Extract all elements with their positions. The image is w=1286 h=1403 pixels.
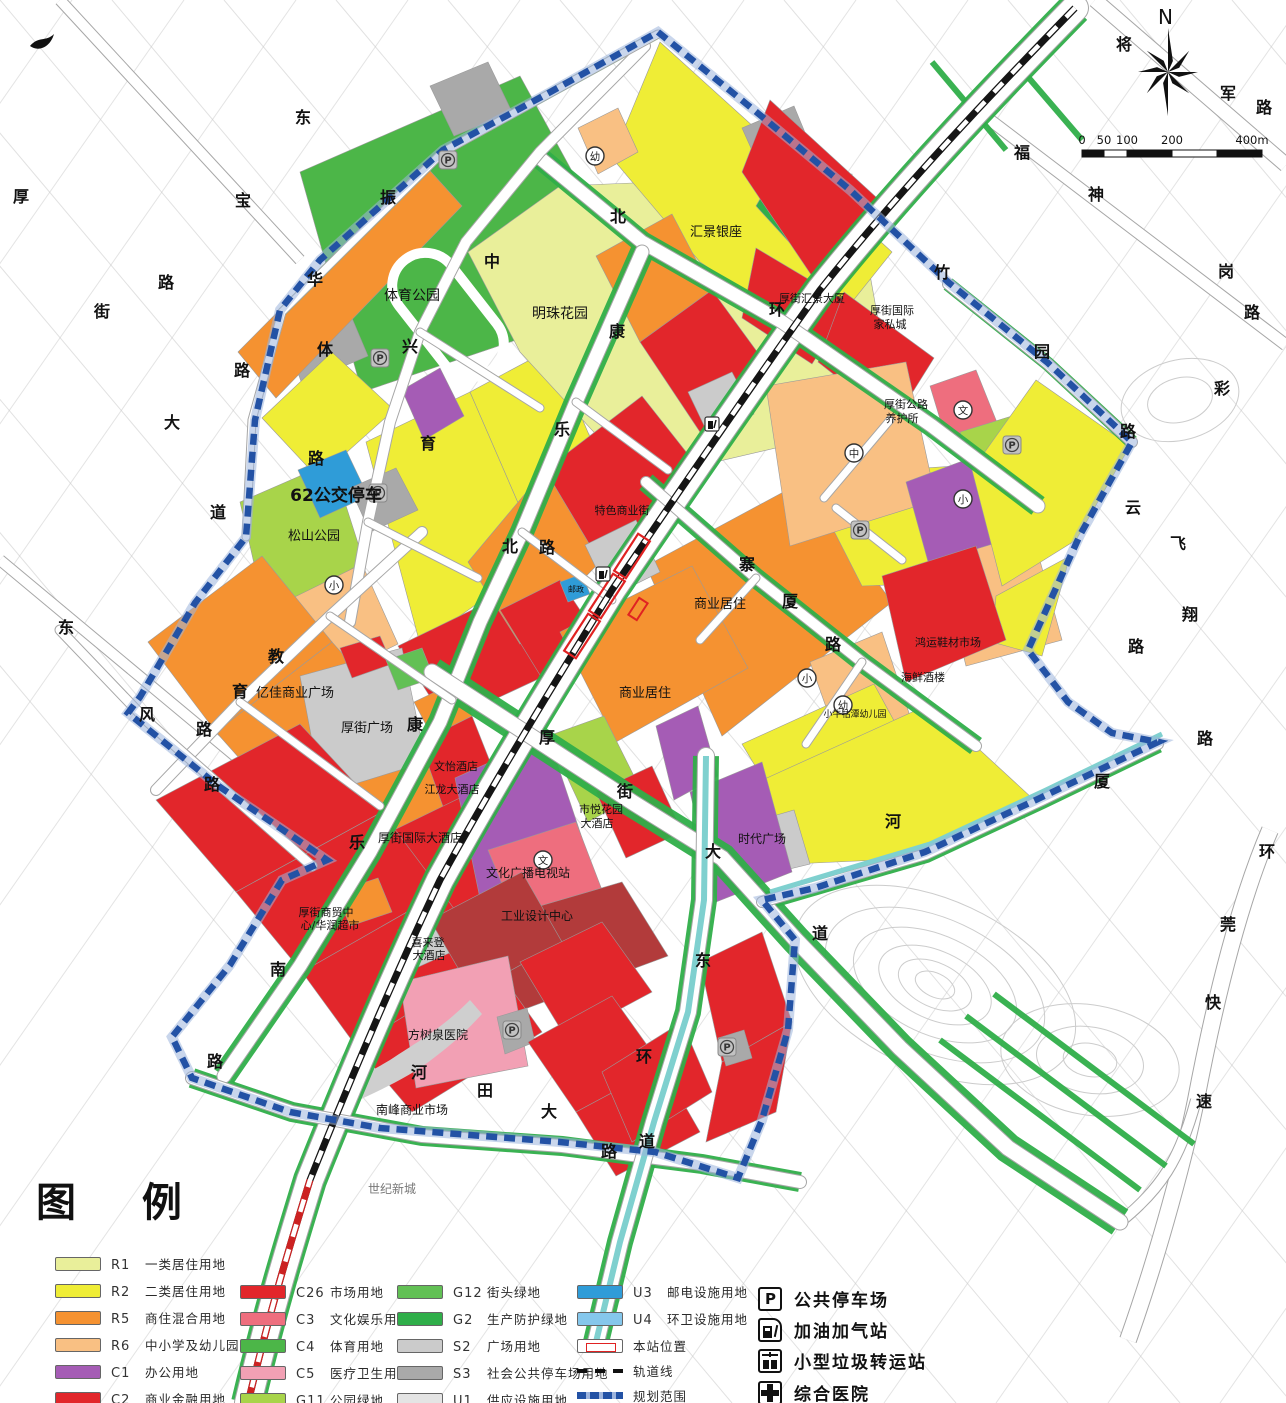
place-label: 厚街汇景大厦 bbox=[779, 291, 845, 305]
scale-tick-label: 50 bbox=[1097, 133, 1112, 147]
road-name-char: 宝 bbox=[235, 191, 251, 210]
gas-station-icon bbox=[705, 417, 719, 431]
school-culture-icon: 小 bbox=[954, 490, 972, 508]
road-name-char: 神 bbox=[1088, 185, 1104, 204]
road-name-char: 快 bbox=[1205, 993, 1222, 1012]
road-name-char: 街 bbox=[93, 302, 110, 321]
parking-icon: P bbox=[503, 1021, 521, 1039]
place-label: 62公交停车 bbox=[290, 485, 382, 506]
road-name-char: 彩 bbox=[1213, 379, 1230, 398]
road-name-char: 飞 bbox=[1170, 534, 1186, 553]
road-name-char: 路 bbox=[1120, 422, 1137, 441]
road-name-char: 河 bbox=[885, 812, 901, 831]
place-label: 鸿运鞋材市场 bbox=[915, 635, 981, 649]
road-name-char: 道 bbox=[210, 503, 226, 522]
school-culture-icon: 中 bbox=[845, 444, 863, 462]
parking-icon: P bbox=[371, 349, 389, 367]
road-name-char: 乐 bbox=[554, 420, 570, 439]
road-name-char: 翔 bbox=[1181, 605, 1198, 624]
place-label: 体育公园 bbox=[384, 288, 440, 304]
svg-text:中: 中 bbox=[849, 447, 860, 460]
place-label: 商业居住 bbox=[694, 597, 746, 612]
road-name-char: 路 bbox=[1244, 303, 1261, 322]
road-name-char: 北 bbox=[610, 207, 626, 226]
road-name-char: 环 bbox=[636, 1047, 652, 1066]
road-name-char: 军 bbox=[1220, 84, 1236, 103]
scale-bar: 050100200400m bbox=[1078, 133, 1268, 157]
place-label: 厚街国际 bbox=[870, 303, 914, 317]
svg-text:P: P bbox=[1008, 441, 1015, 452]
road-name-char: 东 bbox=[58, 618, 74, 637]
road-name-char: 育 bbox=[420, 434, 436, 453]
road-name-char: 园 bbox=[1034, 342, 1050, 361]
road-name-char: 路 bbox=[1128, 637, 1145, 656]
road-name-char: 厚 bbox=[13, 187, 29, 206]
svg-text:小: 小 bbox=[958, 494, 969, 506]
svg-text:幼: 幼 bbox=[590, 150, 601, 163]
place-label: 喜来登 bbox=[412, 935, 445, 949]
svg-text:文: 文 bbox=[538, 854, 549, 867]
landuse-parcels bbox=[148, 42, 1130, 1176]
road-name-char: 福 bbox=[1013, 143, 1030, 162]
school-culture-icon: 小 bbox=[325, 576, 343, 594]
place-label: 南峰商业市场 bbox=[376, 1102, 448, 1117]
scale-tick-label: 100 bbox=[1116, 133, 1138, 147]
place-label: 厚街公路 bbox=[884, 397, 928, 411]
svg-text:P: P bbox=[376, 354, 383, 365]
school-culture-icon: 幼 bbox=[586, 147, 604, 165]
place-label: 汇景银座 bbox=[690, 225, 742, 240]
road-name-char: 振 bbox=[380, 188, 396, 207]
road-name-char: 路 bbox=[539, 538, 556, 557]
place-label: 厚街广场 bbox=[341, 721, 393, 736]
road-name-char: 街 bbox=[616, 782, 633, 801]
scale-tick-label: 400m bbox=[1235, 133, 1268, 147]
map-canvas: PPPPPPP文文中小小小幼幼 振华体兴中北环康乐北路育路教育路东风路康乐南路寨… bbox=[0, 0, 1286, 1403]
road-name-char: 环 bbox=[1259, 842, 1275, 861]
road-name-char: 将 bbox=[1116, 35, 1132, 54]
road-name-char: 东 bbox=[695, 951, 711, 970]
school-culture-icon: 文 bbox=[954, 401, 972, 419]
road-name-char: 北 bbox=[502, 537, 518, 556]
road-name-char: 寨 bbox=[738, 555, 755, 574]
road-name-char: 大 bbox=[705, 842, 721, 861]
planning-map-page: PPPPPPP文文中小小小幼幼 振华体兴中北环康乐北路育路教育路东风路康乐南路寨… bbox=[0, 0, 1286, 1403]
place-label: 明珠花园 bbox=[532, 306, 588, 322]
school-culture-icon: 小 bbox=[798, 669, 816, 687]
road-name-char: 大 bbox=[164, 413, 180, 432]
place-label: 大酒店 bbox=[581, 816, 614, 830]
gas-station-icon bbox=[596, 567, 610, 581]
place-label: 小牛牯潭幼儿园 bbox=[823, 708, 886, 720]
place-label: 时代广场 bbox=[738, 832, 786, 846]
place-label: 海鲜酒楼 bbox=[901, 670, 945, 684]
north-arrow-icon: N bbox=[1138, 5, 1198, 116]
road-name-char: 兴 bbox=[402, 337, 418, 356]
parking-icon: P bbox=[718, 1038, 736, 1056]
scale-tick-label: 0 bbox=[1078, 133, 1085, 147]
road-name-char: 华 bbox=[307, 270, 323, 289]
place-label: 亿佳商业广场 bbox=[256, 686, 334, 701]
place-label: 特色商业街 bbox=[595, 503, 650, 517]
place-label: 厚街国际大酒店 bbox=[378, 831, 462, 845]
place-label: 工业设计中心 bbox=[501, 908, 573, 923]
road-name-char: 乐 bbox=[349, 833, 365, 852]
svg-text:小: 小 bbox=[329, 580, 340, 592]
place-label: 家私城 bbox=[874, 317, 907, 331]
road-name-char: 风 bbox=[139, 705, 155, 724]
road-name-char: 大 bbox=[541, 1102, 557, 1121]
parking-icon: P bbox=[851, 521, 869, 539]
place-label: 商业居住 bbox=[619, 686, 671, 701]
road-name-char: 岗 bbox=[1218, 262, 1234, 281]
place-label: 文化广播电视站 bbox=[486, 865, 570, 880]
svg-text:小: 小 bbox=[802, 673, 813, 685]
road-name-char: 路 bbox=[601, 1142, 618, 1161]
parking-icon: P bbox=[439, 151, 457, 169]
road-name-char: 河 bbox=[411, 1063, 427, 1082]
place-label: 养护所 bbox=[886, 411, 919, 425]
scale-tick-label: 200 bbox=[1161, 133, 1183, 147]
road-name-char: 厦 bbox=[1094, 772, 1111, 791]
svg-text:P: P bbox=[856, 526, 863, 537]
road-name-char: 路 bbox=[196, 720, 213, 739]
road-name-char: 教 bbox=[268, 647, 285, 666]
road-name-char: 路 bbox=[1197, 729, 1214, 748]
svg-text:P: P bbox=[508, 1026, 515, 1037]
parking-icon: P bbox=[1003, 436, 1021, 454]
road-name-char: 竹 bbox=[933, 263, 950, 282]
svg-text:P: P bbox=[723, 1043, 730, 1054]
road-name-char: 路 bbox=[158, 273, 175, 292]
road-name-char: 东 bbox=[295, 108, 311, 127]
road-name-char: 中 bbox=[484, 252, 500, 271]
north-label: N bbox=[1158, 5, 1173, 29]
place-label: 文怡酒店 bbox=[434, 759, 478, 773]
road-name-char: 路 bbox=[1256, 98, 1273, 117]
road-name-char: 云 bbox=[1125, 498, 1141, 517]
map-artifact bbox=[30, 34, 54, 49]
road-name-char: 路 bbox=[207, 1052, 224, 1071]
place-label: 厚街商贸中 bbox=[299, 905, 354, 919]
road-name-char: 道 bbox=[812, 924, 828, 943]
place-label: 江龙大酒店 bbox=[425, 782, 480, 796]
place-label: 世纪新城 bbox=[368, 1181, 416, 1196]
road-name-char: 厚 bbox=[539, 728, 555, 747]
road-name-char: 厦 bbox=[782, 592, 799, 611]
road-name-char: 体 bbox=[317, 340, 334, 359]
road-name-char: 莞 bbox=[1220, 915, 1236, 934]
road-name-char: 道 bbox=[639, 1132, 655, 1151]
road-name-char: 路 bbox=[234, 361, 251, 380]
road-name-char: 速 bbox=[1196, 1092, 1212, 1111]
place-label: 市悦花园 bbox=[579, 802, 623, 816]
svg-text:P: P bbox=[444, 156, 451, 167]
place-label: 心/华润超市 bbox=[301, 918, 360, 932]
place-label: 邮政 bbox=[568, 584, 584, 594]
place-label: 方树泉医院 bbox=[408, 1027, 468, 1042]
road-name-char: 田 bbox=[477, 1081, 493, 1100]
road-name-char: 路 bbox=[308, 449, 325, 468]
place-label: 大酒店 bbox=[413, 948, 446, 962]
road-name-char: 康 bbox=[407, 715, 424, 734]
road-name-char: 南 bbox=[270, 960, 286, 979]
road-name-char: 路 bbox=[204, 775, 221, 794]
road-name-char: 育 bbox=[232, 682, 248, 701]
road-name-char: 路 bbox=[825, 635, 842, 654]
svg-text:文: 文 bbox=[958, 404, 969, 417]
place-label: 松山公园 bbox=[288, 529, 340, 544]
road-name-char: 康 bbox=[609, 322, 626, 341]
